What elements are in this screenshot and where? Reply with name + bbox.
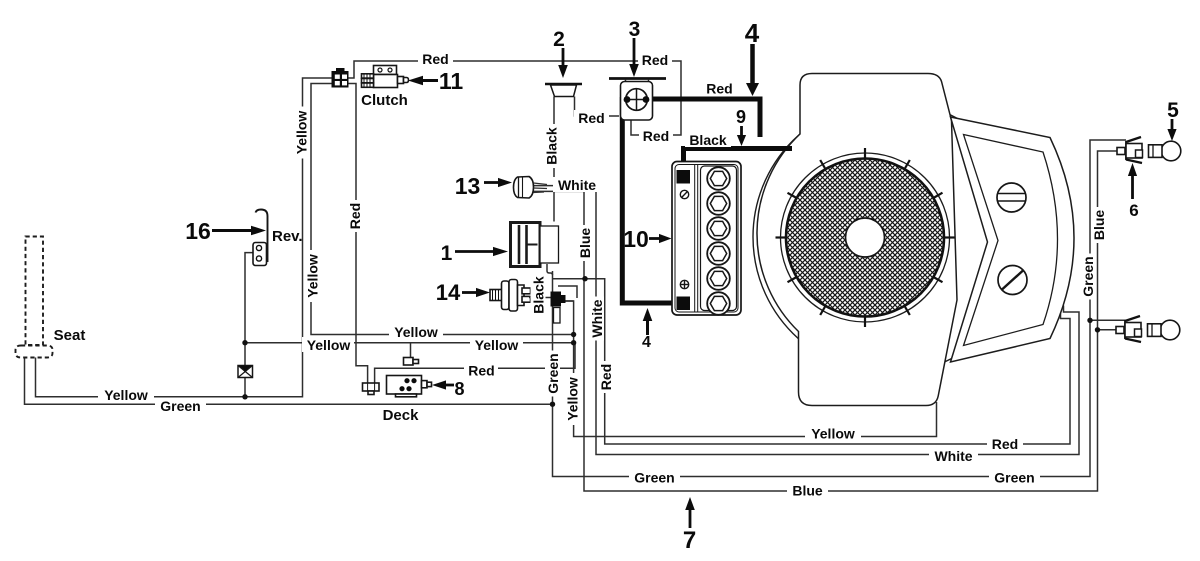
svg-text:10: 10 <box>623 226 649 252</box>
svg-text:Blue: Blue <box>1091 210 1107 241</box>
svg-text:Red: Red <box>468 363 494 379</box>
svg-text:Yellow: Yellow <box>565 377 581 421</box>
svg-text:Green: Green <box>160 398 200 414</box>
svg-text:Seat: Seat <box>54 327 86 344</box>
svg-text:14: 14 <box>436 280 461 305</box>
svg-text:4: 4 <box>745 18 760 48</box>
svg-text:Yellow: Yellow <box>475 337 519 353</box>
svg-text:Green: Green <box>634 470 674 486</box>
svg-text:Red: Red <box>578 110 604 126</box>
svg-text:Yellow: Yellow <box>811 426 855 442</box>
svg-text:Yellow: Yellow <box>307 337 351 353</box>
svg-text:Green: Green <box>545 353 561 393</box>
svg-text:Black: Black <box>544 127 560 165</box>
svg-text:Red: Red <box>347 203 363 229</box>
svg-text:Deck: Deck <box>383 407 420 424</box>
svg-text:Red: Red <box>992 436 1018 452</box>
svg-text:Blue: Blue <box>577 228 593 259</box>
svg-text:8: 8 <box>454 379 464 399</box>
svg-text:Red: Red <box>422 51 448 67</box>
svg-text:11: 11 <box>439 68 464 94</box>
svg-text:Yellow: Yellow <box>394 324 438 340</box>
svg-text:Blue: Blue <box>792 483 823 499</box>
svg-text:5: 5 <box>1167 99 1179 122</box>
svg-text:Black: Black <box>689 132 727 148</box>
svg-text:Yellow: Yellow <box>305 254 321 298</box>
svg-text:7: 7 <box>683 527 696 554</box>
svg-text:9: 9 <box>736 107 746 127</box>
svg-text:Yellow: Yellow <box>104 387 148 403</box>
svg-text:Green: Green <box>994 470 1034 486</box>
svg-text:2: 2 <box>553 28 565 51</box>
svg-text:4: 4 <box>642 334 651 351</box>
svg-text:White: White <box>934 448 972 464</box>
svg-text:Clutch: Clutch <box>361 92 408 109</box>
svg-text:6: 6 <box>1129 201 1138 220</box>
svg-text:White: White <box>558 177 596 193</box>
svg-text:Black: Black <box>531 276 547 314</box>
svg-text:White: White <box>589 299 605 337</box>
svg-text:Red: Red <box>642 52 668 68</box>
svg-text:Yellow: Yellow <box>294 111 310 155</box>
svg-text:Red: Red <box>598 364 614 390</box>
svg-text:16: 16 <box>185 218 211 244</box>
svg-text:13: 13 <box>455 173 481 199</box>
svg-text:Red: Red <box>706 81 732 97</box>
svg-text:Red: Red <box>643 128 669 144</box>
svg-text:3: 3 <box>629 18 641 41</box>
svg-text:Green: Green <box>1080 256 1096 296</box>
svg-text:Rev.: Rev. <box>272 228 303 245</box>
svg-text:1: 1 <box>441 242 453 265</box>
